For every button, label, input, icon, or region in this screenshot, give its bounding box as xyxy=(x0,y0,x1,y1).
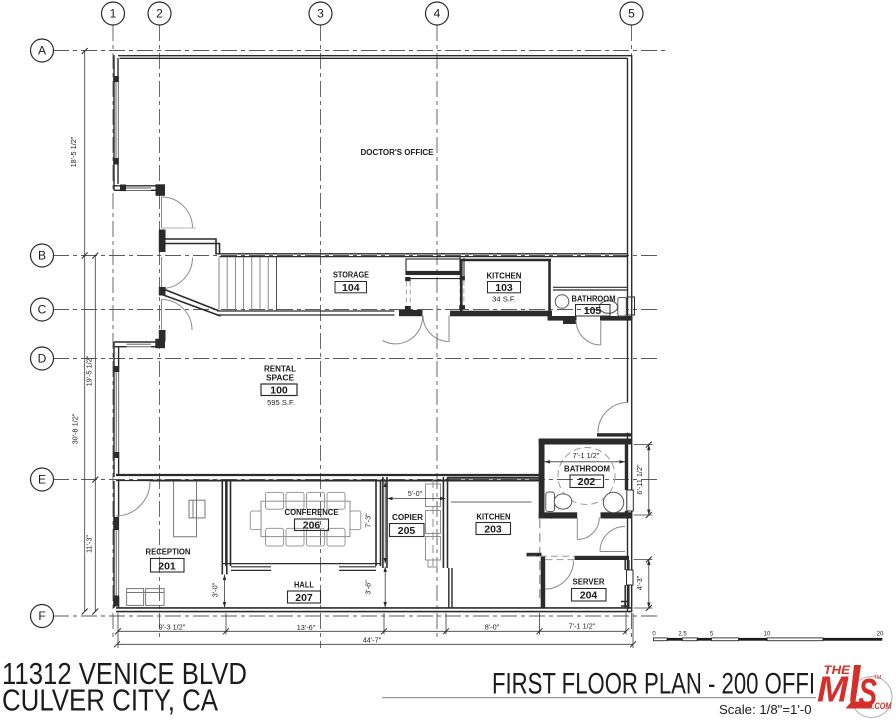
svg-text:HALL: HALL xyxy=(294,580,314,590)
svg-text:20: 20 xyxy=(877,632,884,638)
svg-text:3: 3 xyxy=(317,7,324,21)
svg-text:KITCHEN: KITCHEN xyxy=(487,271,522,281)
svg-text:SERVER: SERVER xyxy=(573,577,606,587)
svg-text:2.5: 2.5 xyxy=(678,632,687,638)
svg-text:2: 2 xyxy=(156,7,163,21)
svg-text:595 S.F.: 595 S.F. xyxy=(267,398,295,407)
svg-text:D: D xyxy=(38,352,47,366)
svg-text:A: A xyxy=(38,44,46,58)
svg-text:6'-11 1/2": 6'-11 1/2" xyxy=(635,464,644,495)
svg-text:1: 1 xyxy=(110,7,117,21)
svg-text:F: F xyxy=(38,609,45,623)
svg-text:STORAGE: STORAGE xyxy=(333,270,369,280)
svg-text:100: 100 xyxy=(270,385,288,397)
svg-text:8'-0": 8'-0" xyxy=(485,622,500,631)
svg-text:CULVER CITY, CA: CULVER CITY, CA xyxy=(2,683,218,718)
svg-text:BATHROOM: BATHROOM xyxy=(572,294,616,303)
svg-text:103: 103 xyxy=(495,282,513,294)
svg-text:7'-1 1/2": 7'-1 1/2" xyxy=(573,451,600,460)
svg-text:203: 203 xyxy=(484,524,502,536)
svg-text:3'-6": 3'-6" xyxy=(364,580,373,595)
svg-text:TM: TM xyxy=(874,675,882,681)
svg-text:COPIER: COPIER xyxy=(392,512,424,522)
svg-text:202: 202 xyxy=(578,476,596,488)
svg-text:CONFERENCE: CONFERENCE xyxy=(285,507,339,517)
svg-text:DOCTOR'S OFFICE: DOCTOR'S OFFICE xyxy=(361,147,434,157)
svg-text:11'-3": 11'-3" xyxy=(85,535,94,553)
svg-text:105: 105 xyxy=(584,305,602,317)
svg-text:44'-7": 44'-7" xyxy=(363,635,382,644)
svg-text:5'-0": 5'-0" xyxy=(408,489,423,498)
svg-text:Scale: 1/8"=1'-0: Scale: 1/8"=1'-0 xyxy=(719,702,812,717)
svg-text:4: 4 xyxy=(434,7,441,21)
svg-text:13'-6": 13'-6" xyxy=(297,623,316,632)
svg-text:4'-3": 4'-3" xyxy=(635,575,644,590)
svg-text:7'-1 1/2": 7'-1 1/2" xyxy=(569,622,596,631)
svg-text:KITCHEN: KITCHEN xyxy=(477,512,511,522)
svg-text:10: 10 xyxy=(764,632,771,638)
svg-text:9'-3 1/2": 9'-3 1/2" xyxy=(159,622,186,631)
svg-text:B: B xyxy=(38,249,46,263)
svg-text:M: M xyxy=(817,669,850,710)
svg-text:C: C xyxy=(38,303,47,317)
svg-text:3'-0": 3'-0" xyxy=(211,582,220,597)
svg-text:206: 206 xyxy=(303,520,321,532)
svg-text:SPACE: SPACE xyxy=(266,373,294,383)
svg-text:204: 204 xyxy=(580,590,598,602)
svg-text:.COM: .COM xyxy=(873,701,893,711)
svg-text:205: 205 xyxy=(398,525,416,537)
svg-text:104: 104 xyxy=(342,282,360,294)
svg-text:18'-5 1/2": 18'-5 1/2" xyxy=(69,136,78,167)
svg-text:19'-5 1/2": 19'-5 1/2" xyxy=(85,355,94,386)
svg-text:FIRST FLOOR PLAN - 200 OFFI: FIRST FLOOR PLAN - 200 OFFI xyxy=(492,668,815,701)
svg-text:30'-8 1/2": 30'-8 1/2" xyxy=(71,413,80,444)
svg-text:RECEPTION: RECEPTION xyxy=(146,547,191,557)
svg-text:5: 5 xyxy=(628,7,635,21)
svg-text:7'-3": 7'-3" xyxy=(364,513,373,528)
svg-text:BATHROOM: BATHROOM xyxy=(564,464,610,474)
svg-text:201: 201 xyxy=(158,561,176,573)
svg-text:34 S.F.: 34 S.F. xyxy=(492,295,516,304)
svg-text:E: E xyxy=(38,473,46,487)
svg-text:207: 207 xyxy=(295,592,313,604)
